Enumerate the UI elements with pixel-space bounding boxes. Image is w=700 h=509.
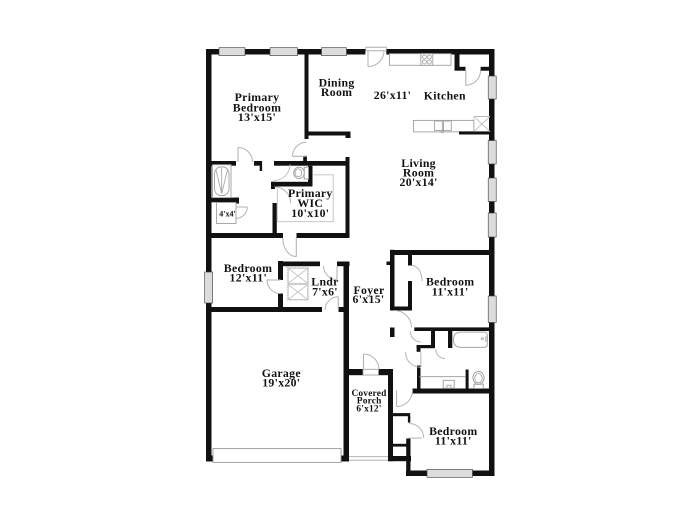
svg-text:Kitchen: Kitchen <box>424 89 466 103</box>
svg-text:11'x11': 11'x11' <box>435 434 472 448</box>
svg-text:6'x15': 6'x15' <box>353 292 385 306</box>
svg-text:Room: Room <box>321 85 352 99</box>
svg-text:4'x4': 4'x4' <box>219 210 235 219</box>
svg-text:10'x10': 10'x10' <box>291 206 329 220</box>
svg-text:7'x6': 7'x6' <box>312 284 338 298</box>
svg-text:11'x11': 11'x11' <box>432 284 469 298</box>
svg-text:20'x14': 20'x14' <box>400 175 438 189</box>
svg-text:26'x11': 26'x11' <box>374 88 412 102</box>
svg-text:19'x20': 19'x20' <box>262 376 300 390</box>
svg-text:6'x12': 6'x12' <box>356 404 381 414</box>
svg-text:12'x11': 12'x11' <box>230 271 268 285</box>
svg-text:13'x15': 13'x15' <box>238 110 276 124</box>
